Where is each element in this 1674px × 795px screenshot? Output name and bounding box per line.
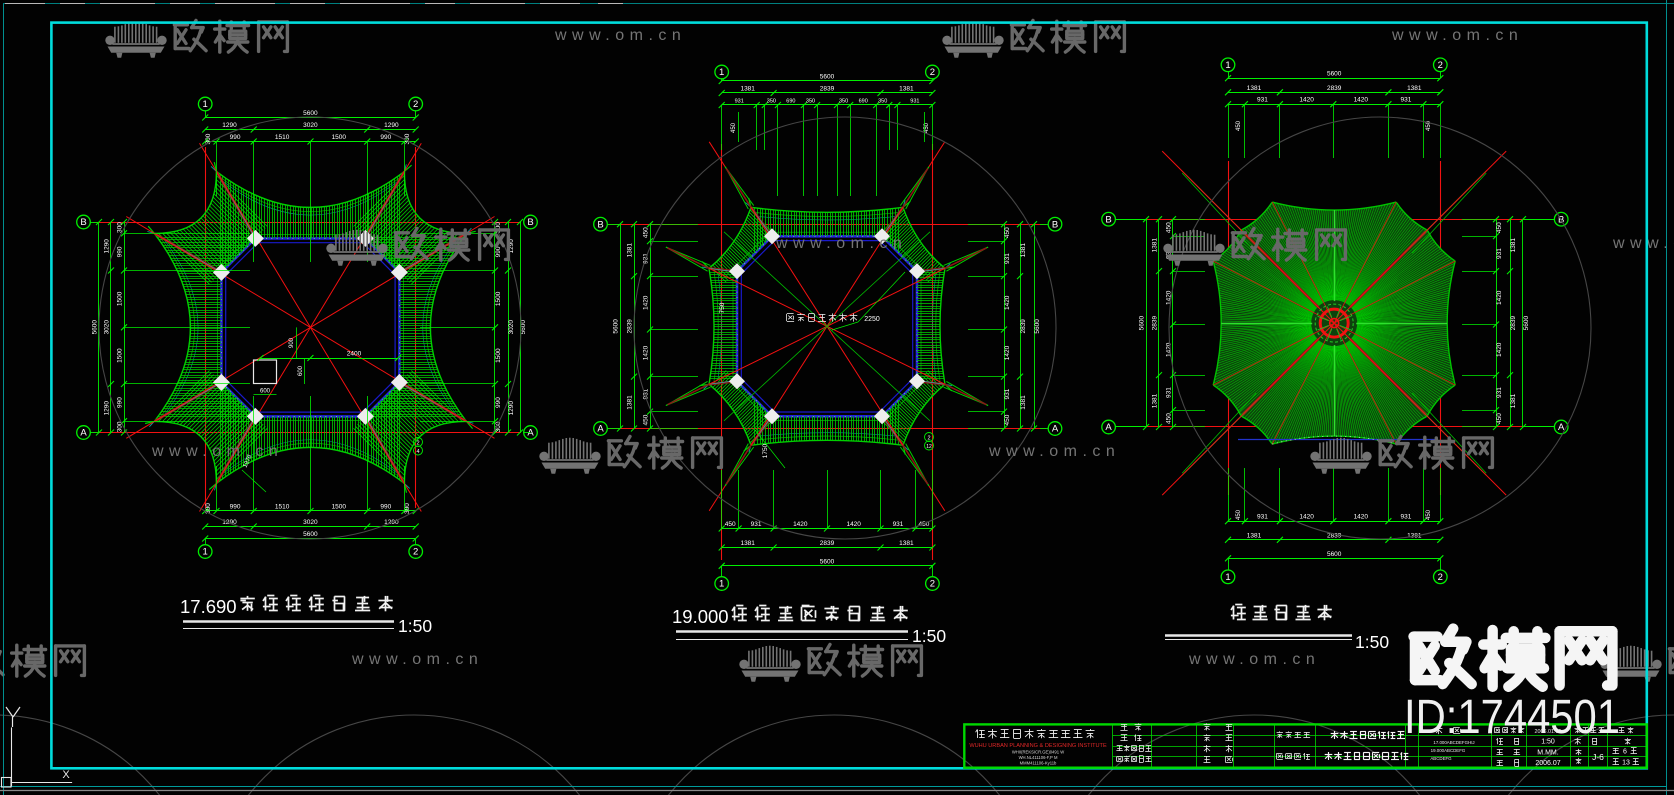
- svg-text:B: B: [80, 217, 86, 228]
- svg-text:5600: 5600: [303, 110, 318, 117]
- svg-text:2: 2: [1438, 60, 1443, 71]
- svg-text:J-6: J-6: [1592, 752, 1604, 762]
- svg-text:690: 690: [786, 99, 795, 105]
- svg-text:931: 931: [893, 521, 904, 528]
- svg-text:B: B: [597, 219, 603, 230]
- svg-text:1: 1: [203, 99, 208, 110]
- svg-text:990: 990: [495, 246, 502, 257]
- svg-text:1500: 1500: [495, 348, 502, 363]
- svg-text:4: 4: [416, 449, 419, 455]
- svg-text:450: 450: [643, 414, 650, 425]
- svg-text:450: 450: [1496, 222, 1503, 233]
- svg-text:300: 300: [205, 503, 212, 514]
- svg-text:1381: 1381: [1510, 393, 1517, 408]
- svg-text:931: 931: [1166, 387, 1173, 398]
- svg-text:3020: 3020: [303, 122, 318, 129]
- svg-text:931: 931: [910, 99, 919, 105]
- svg-text:1420: 1420: [643, 295, 650, 310]
- svg-text:450: 450: [924, 122, 930, 133]
- svg-text:1420: 1420: [1004, 345, 1011, 360]
- svg-text:A: A: [527, 428, 534, 439]
- svg-text:2: 2: [416, 441, 419, 447]
- svg-text:990: 990: [117, 397, 124, 408]
- svg-text:B: B: [527, 217, 533, 228]
- svg-text:931: 931: [1400, 97, 1411, 104]
- svg-text:1381: 1381: [1152, 238, 1159, 253]
- svg-text:1381: 1381: [1407, 85, 1422, 92]
- svg-text:5600: 5600: [613, 319, 620, 334]
- svg-text:1750: 1750: [762, 443, 769, 458]
- svg-text:931: 931: [1257, 514, 1268, 521]
- svg-text:450: 450: [1004, 227, 1011, 238]
- svg-text:1381: 1381: [740, 86, 755, 93]
- svg-text:2: 2: [930, 67, 935, 78]
- svg-text:2250: 2250: [864, 316, 880, 323]
- svg-text:1381: 1381: [1020, 243, 1027, 258]
- svg-text:5600: 5600: [820, 558, 835, 565]
- svg-text:5600: 5600: [1327, 551, 1342, 558]
- svg-text:5600: 5600: [1034, 319, 1041, 334]
- svg-text:450: 450: [1496, 413, 1503, 424]
- svg-text:ABCDEFG: ABCDEFG: [1430, 756, 1452, 761]
- svg-text:2: 2: [930, 579, 935, 590]
- svg-text:350: 350: [839, 99, 848, 105]
- svg-text:350: 350: [878, 99, 887, 105]
- svg-text:www.om.cn: www.om.cn: [554, 27, 686, 44]
- svg-text:300: 300: [117, 421, 124, 432]
- svg-text:1290: 1290: [104, 401, 111, 416]
- svg-text:300: 300: [404, 503, 411, 514]
- svg-text:450: 450: [1236, 120, 1242, 131]
- svg-text:A: A: [1105, 422, 1112, 433]
- svg-text:350: 350: [806, 99, 815, 105]
- svg-text:1420: 1420: [793, 521, 808, 528]
- svg-text:1290: 1290: [104, 239, 111, 254]
- svg-text:931: 931: [1496, 248, 1503, 259]
- svg-text:1500: 1500: [495, 291, 502, 306]
- svg-text:450: 450: [1166, 413, 1173, 424]
- svg-text:www.om.cn: www.om.cn: [988, 443, 1120, 460]
- svg-text:750: 750: [719, 302, 726, 313]
- svg-text:13: 13: [1622, 760, 1630, 767]
- svg-text:1290: 1290: [384, 122, 399, 129]
- svg-text:1381: 1381: [1020, 395, 1027, 410]
- svg-text:450: 450: [731, 122, 737, 133]
- svg-text:1510: 1510: [275, 504, 290, 511]
- svg-text:2839: 2839: [820, 86, 835, 93]
- svg-text:2839: 2839: [1020, 319, 1027, 334]
- svg-text:1420: 1420: [1299, 97, 1314, 104]
- svg-text:1: 1: [203, 547, 208, 558]
- svg-text:B: B: [1105, 214, 1111, 225]
- svg-text:1500: 1500: [117, 291, 124, 306]
- svg-text:5600: 5600: [1327, 71, 1342, 78]
- svg-text:350: 350: [767, 99, 776, 105]
- svg-text:900: 900: [289, 337, 295, 348]
- svg-text:990: 990: [380, 504, 391, 511]
- svg-text:1290: 1290: [222, 122, 237, 129]
- svg-text:931: 931: [1004, 388, 1011, 399]
- svg-text:1420: 1420: [1354, 97, 1369, 104]
- svg-text:450: 450: [1426, 509, 1432, 520]
- svg-text:1381: 1381: [1247, 85, 1262, 92]
- svg-text:2839: 2839: [1510, 315, 1517, 330]
- svg-text:5600: 5600: [1139, 315, 1146, 330]
- svg-text:1:50: 1:50: [1355, 632, 1389, 652]
- svg-text:450: 450: [725, 521, 736, 528]
- svg-text:1381: 1381: [740, 540, 755, 547]
- svg-text:450: 450: [1166, 222, 1173, 233]
- svg-text:X: X: [62, 769, 70, 781]
- svg-text:1381: 1381: [627, 243, 634, 258]
- svg-text:1500: 1500: [117, 348, 124, 363]
- svg-text:990: 990: [117, 246, 124, 257]
- svg-text:6: 6: [1623, 749, 1627, 756]
- svg-text:3020: 3020: [104, 320, 111, 335]
- svg-text:1381: 1381: [1152, 393, 1159, 408]
- svg-text:WUHU URBAN PLANNING & DESIGNIN: WUHU URBAN PLANNING & DESIGNING INSTITUT…: [969, 743, 1107, 749]
- svg-text:5600: 5600: [92, 320, 99, 335]
- svg-text:931: 931: [1004, 253, 1011, 264]
- svg-text:1420: 1420: [846, 521, 861, 528]
- svg-text:1420: 1420: [1004, 295, 1011, 310]
- svg-text:B: B: [1052, 219, 1058, 230]
- svg-text:931: 931: [735, 99, 744, 105]
- svg-text:1:50: 1:50: [398, 616, 432, 636]
- svg-text:MMM411106-Ky11b: MMM411106-Ky11b: [1020, 761, 1057, 766]
- svg-text:2400: 2400: [347, 351, 362, 358]
- svg-text:1420: 1420: [1299, 514, 1314, 521]
- svg-text:690: 690: [859, 99, 868, 105]
- svg-text:www.om.cn: www.om.cn: [351, 651, 483, 668]
- svg-text:1381: 1381: [1247, 532, 1262, 539]
- svg-text:1420: 1420: [1354, 514, 1369, 521]
- svg-text:2839: 2839: [627, 319, 634, 334]
- svg-text:2839: 2839: [1327, 85, 1342, 92]
- svg-text:www.om.cn: www.om.cn: [151, 443, 283, 460]
- svg-text:2839: 2839: [1152, 315, 1159, 330]
- svg-text:17.690: 17.690: [180, 596, 237, 617]
- svg-text:3020: 3020: [508, 320, 515, 335]
- svg-text:WHII(REKSICR.GE)0491 W: WHII(REKSICR.GE)0491 W: [1012, 750, 1064, 755]
- svg-text:2839: 2839: [820, 540, 835, 547]
- svg-text:M.MM.: M.MM.: [1537, 749, 1558, 756]
- svg-text:5600: 5600: [303, 531, 318, 538]
- svg-text:450: 450: [1236, 509, 1242, 520]
- svg-text:1381: 1381: [899, 540, 914, 547]
- svg-text:5600: 5600: [820, 74, 835, 81]
- svg-text:1420: 1420: [1496, 290, 1503, 305]
- svg-text:1: 1: [719, 67, 724, 78]
- svg-text:1381: 1381: [899, 86, 914, 93]
- svg-text:A: A: [80, 428, 87, 439]
- svg-text:www.om.cn: www.om.cn: [1612, 235, 1674, 252]
- svg-text:450: 450: [643, 227, 650, 238]
- svg-text:450: 450: [1004, 414, 1011, 425]
- svg-text:A: A: [597, 424, 604, 435]
- svg-text:2: 2: [413, 547, 418, 558]
- svg-text:1420: 1420: [1496, 342, 1503, 357]
- svg-text:12: 12: [926, 444, 932, 450]
- svg-text:990: 990: [495, 397, 502, 408]
- svg-text:2: 2: [413, 99, 418, 110]
- svg-text:ID:1744501: ID:1744501: [1404, 691, 1620, 744]
- svg-text:1500: 1500: [332, 504, 347, 511]
- svg-text:19.000: 19.000: [672, 606, 729, 627]
- svg-text:990: 990: [230, 504, 241, 511]
- svg-text:1381: 1381: [1510, 238, 1517, 253]
- svg-text:1381: 1381: [627, 395, 634, 410]
- svg-text:990: 990: [230, 134, 241, 141]
- svg-text:1420: 1420: [1166, 342, 1173, 357]
- svg-text:www.om.cn: www.om.cn: [1391, 27, 1523, 44]
- svg-text:1: 1: [1225, 60, 1230, 71]
- svg-text:5600: 5600: [1523, 315, 1530, 330]
- svg-text:19.000ABCDEFG: 19.000ABCDEFG: [1431, 748, 1466, 753]
- svg-text:931: 931: [1257, 97, 1268, 104]
- svg-text:1: 1: [1225, 572, 1230, 583]
- svg-text:www.om.cn: www.om.cn: [775, 235, 907, 252]
- svg-text:www.om.cn: www.om.cn: [1188, 651, 1320, 668]
- svg-text:1290: 1290: [508, 401, 515, 416]
- svg-text:A: A: [1052, 424, 1059, 435]
- svg-text:1:50: 1:50: [912, 626, 946, 646]
- svg-text:2: 2: [1438, 572, 1443, 583]
- svg-text:3020: 3020: [303, 519, 318, 526]
- svg-text:600: 600: [260, 389, 271, 395]
- svg-text:600: 600: [298, 365, 304, 376]
- svg-text:931: 931: [751, 521, 762, 528]
- svg-text:2: 2: [927, 436, 930, 442]
- svg-text:931: 931: [1400, 514, 1411, 521]
- svg-text:2006.07: 2006.07: [1535, 760, 1560, 767]
- svg-text:1500: 1500: [332, 134, 347, 141]
- svg-text:WH.NL411106-F,P M: WH.NL411106-F,P M: [1019, 755, 1058, 760]
- svg-text:990: 990: [380, 134, 391, 141]
- svg-text:1420: 1420: [643, 345, 650, 360]
- svg-text:1510: 1510: [275, 134, 290, 141]
- svg-text:931: 931: [1496, 387, 1503, 398]
- svg-text:1: 1: [719, 579, 724, 590]
